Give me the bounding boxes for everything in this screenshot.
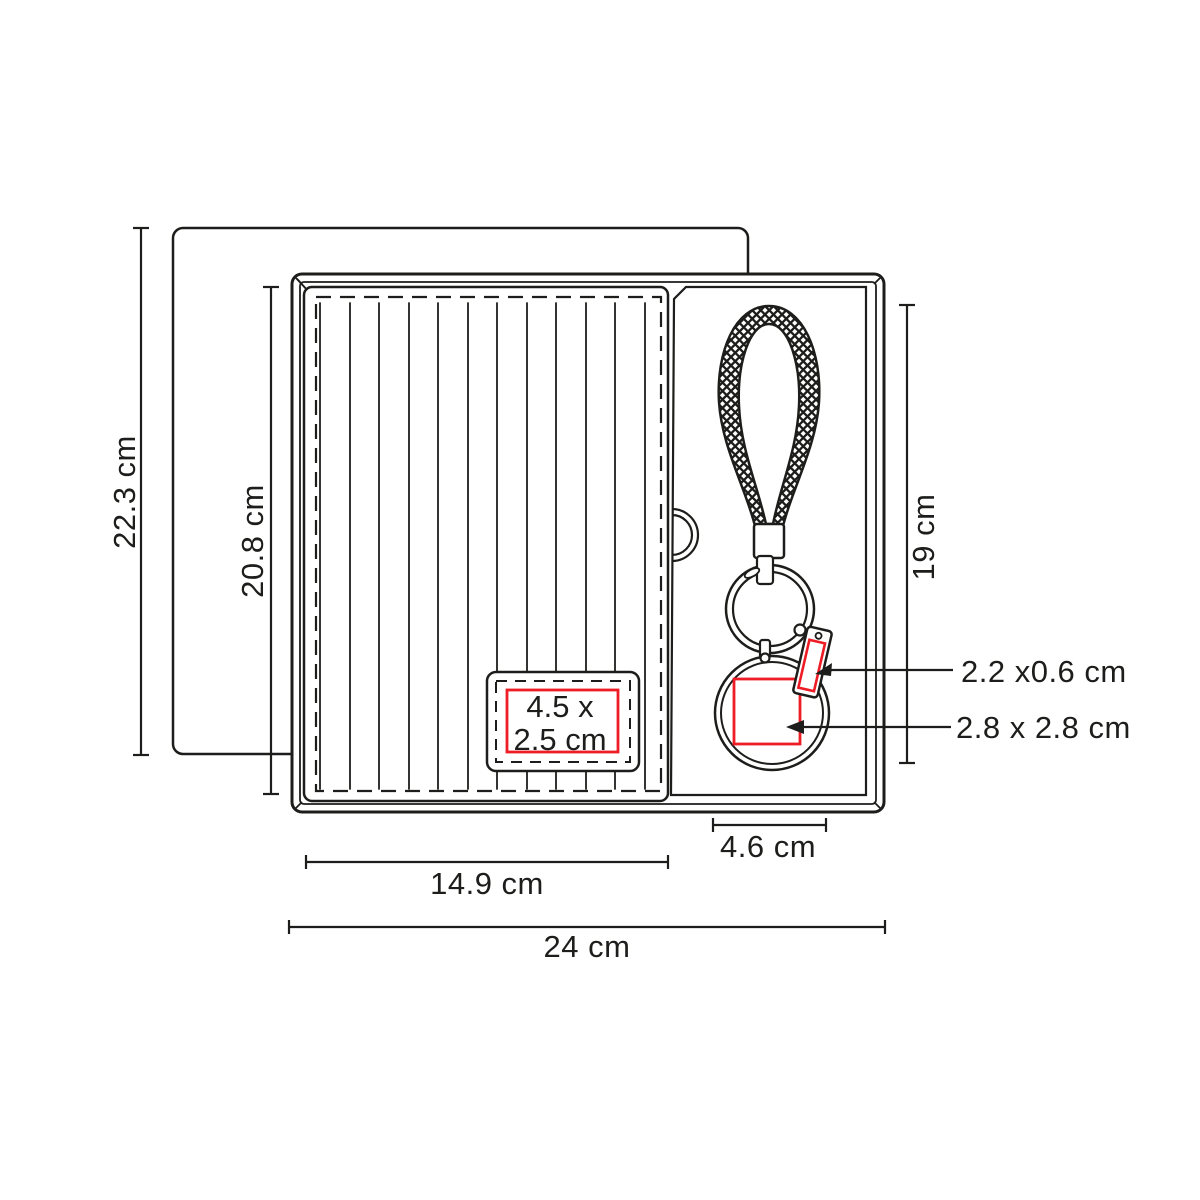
dimension-diagram: 4.5 x 2.5 cm [0, 0, 1200, 1200]
label-notebook-height: 20.8 cm [235, 484, 270, 598]
notebook-print-size-line1: 4.5 x [526, 689, 594, 724]
notebook-print-size-line2: 2.5 cm [513, 722, 606, 757]
label-box-width: 24 cm [544, 929, 631, 964]
label-tray-width: 4.6 cm [720, 829, 816, 864]
tag-hole [815, 632, 822, 639]
disc-tab-hole [761, 654, 770, 663]
label-lid-height: 22.3 cm [107, 435, 142, 549]
dimension-diagram-page: 4.5 x 2.5 cm [0, 0, 1200, 1200]
label-keychain-length: 19 cm [906, 494, 941, 581]
notebook-label-patch: 4.5 x 2.5 cm [487, 672, 639, 771]
tag-link-ring [795, 625, 806, 636]
loop-clamp [754, 524, 784, 558]
label-tag-print: 2.2 x0.6 cm [961, 654, 1127, 689]
label-notebook-width: 14.9 cm [430, 866, 544, 901]
label-disc-print: 2.8 x 2.8 cm [956, 710, 1131, 745]
notebook: 4.5 x 2.5 cm [297, 279, 668, 801]
